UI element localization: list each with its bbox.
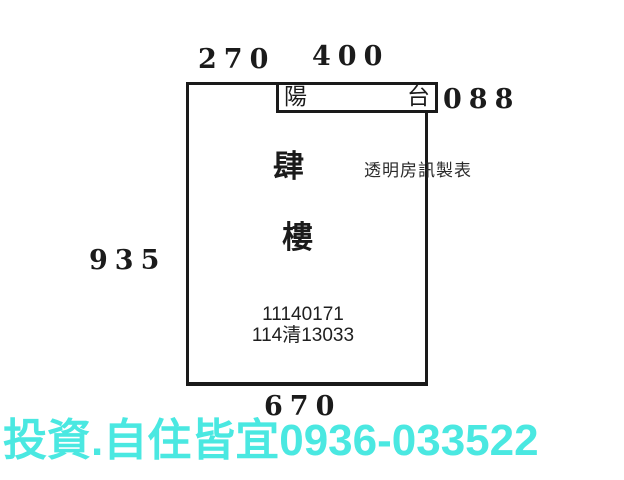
balcony-label-right: 台	[407, 86, 430, 109]
ad-caption: 投資.自住皆宜0936-033522	[3, 417, 623, 465]
dimension-left: 935	[89, 245, 166, 276]
registration-number-line2: 114清13033	[226, 325, 380, 346]
dimension-right: 088	[443, 84, 520, 115]
registration-number-line1: 11140171	[226, 304, 380, 325]
registration-numbers: 11140171 114清13033	[226, 304, 380, 346]
producer-watermark: 透明房訊製表	[364, 156, 472, 181]
floor-label-char-1: 肆	[273, 152, 304, 183]
dimension-top-left: 270	[198, 44, 275, 75]
balcony-label-left: 陽	[284, 86, 307, 109]
dimension-top-right: 400	[312, 41, 389, 72]
balcony-box: 陽 台	[276, 82, 438, 113]
floor-label-char-2: 樓	[282, 223, 313, 254]
floorplan-scan: 270 400 088 935 670 陽 台 肆 樓 透明房訊製表 11140…	[0, 0, 624, 480]
